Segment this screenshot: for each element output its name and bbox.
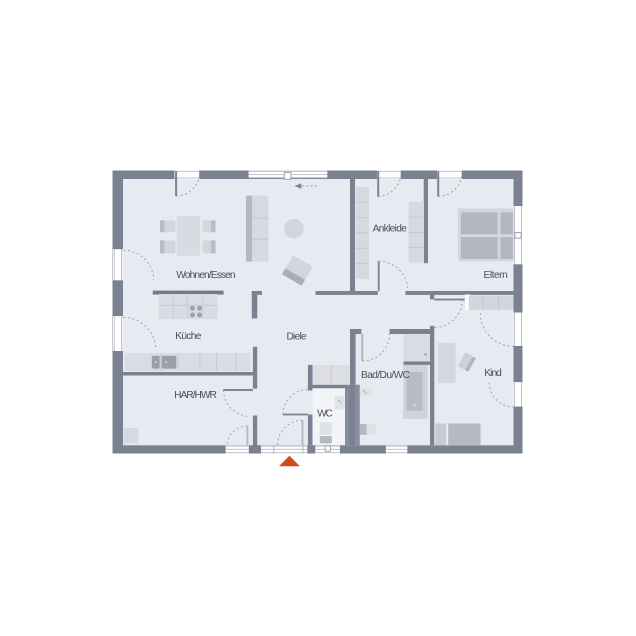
svg-text:HAR/HWR: HAR/HWR — [174, 390, 216, 401]
svg-text:Küche: Küche — [175, 331, 201, 342]
svg-text:Eltern: Eltern — [484, 270, 508, 281]
svg-text:Ankleide: Ankleide — [373, 224, 408, 235]
svg-text:Diele: Diele — [286, 331, 307, 342]
svg-text:Bad/Du/WC: Bad/Du/WC — [361, 370, 410, 381]
svg-text:Wohnen/Essen: Wohnen/Essen — [176, 270, 235, 281]
svg-text:Kind: Kind — [484, 368, 502, 379]
svg-text:WC: WC — [317, 409, 332, 420]
